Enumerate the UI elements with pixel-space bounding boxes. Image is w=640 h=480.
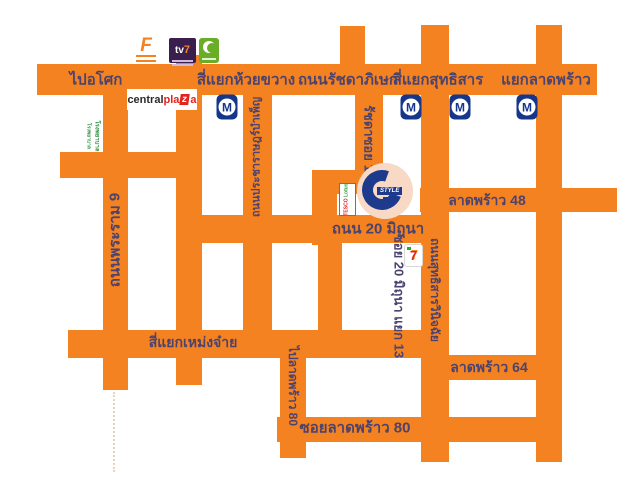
central-plaza-text: pla: [164, 94, 180, 106]
tv7-caption-line: [172, 60, 193, 62]
central-plaza-z-box: z: [180, 94, 191, 105]
tv7-logo: tv7: [169, 38, 196, 63]
green-leaf-logo: [199, 38, 219, 63]
f-channel-logo: F: [136, 36, 156, 62]
road-label-meng-jai: สี่แยกเหม่งจ๋าย: [149, 335, 238, 349]
hospital-text-line: โรงพยาบาล: [91, 120, 100, 151]
road-label-soi-lat-phrao-80: ซอยลาดพร้าว 80: [300, 421, 411, 436]
central-plaza-text: a: [190, 94, 196, 106]
road-segment-east: [536, 25, 562, 462]
leaf-icon-cut: [207, 43, 217, 53]
green-badge-caption-line: [202, 58, 216, 60]
road-label-sutthisan: สี่แยกสุทธิสาร: [393, 73, 484, 88]
central-plaza-logo: centralplaza: [127, 89, 197, 110]
c-style-label: STYLE: [377, 187, 402, 195]
c-style-destination-logo: STYLE: [357, 163, 413, 219]
seven-eleven-icon: 7: [404, 244, 423, 267]
mrt-station-icon: M: [517, 95, 538, 120]
road-label-pracharat-bamphen: ถนนประชาราษฎร์บำเพ็ญ: [252, 97, 263, 217]
road-dotted-continuation: [113, 392, 115, 472]
tesco-text: TESCO: [344, 198, 350, 215]
road-label-lat-phrao-48: ลาดพร้าว 48: [448, 193, 525, 207]
mrt-station-icon: M: [401, 95, 422, 120]
seven-eleven-green-stripe: [407, 247, 411, 250]
c-style-underline: [383, 197, 395, 199]
road-label-yaek-lat-phrao: แยกลาดพร้าว: [501, 73, 591, 88]
tesco-lotus-sign: TESCO Lotus: [339, 183, 356, 216]
f-logo-letter: F: [136, 36, 156, 57]
road-label-ratchadaphisek: ถนนรัชดาภิเษก: [298, 73, 398, 88]
mrt-station-icon: M: [450, 95, 471, 120]
lotus-text: Lotus: [344, 183, 350, 197]
mrt-ring: M: [219, 99, 236, 116]
road-label-sutthisan-winitchai: ถนนสุทธิสารวินิจฉัย: [429, 238, 441, 342]
mrt-m-label: M: [522, 101, 532, 113]
f-logo-caption-bar: [136, 60, 156, 62]
mrt-station-icon: M: [217, 95, 238, 120]
mrt-ring: M: [403, 99, 420, 116]
hospital-text-line: โรงพยาบาล: [84, 120, 92, 151]
road-label-rama9: ถนนพระราม 9: [108, 193, 123, 287]
mrt-ring: M: [519, 99, 536, 116]
tv7-caption-line: [172, 64, 193, 66]
road-label-huai-khwang: สี่แยกห้วยขวาง: [197, 73, 295, 88]
mrt-m-label: M: [455, 101, 465, 113]
seven-eleven-7: 7: [410, 249, 417, 262]
road-segment-soi-20-mithuna: [318, 243, 342, 337]
road-label-20-mithuna: ถนน 20 มิถุนา: [332, 222, 424, 237]
road-label-pai-asok: ไปอโศก: [70, 73, 123, 88]
road-segment-stub: [340, 26, 365, 68]
road-label-pai-lat-phrao-80: ไปลาดพร้าว 80: [287, 346, 299, 426]
hospital-logo: โรงพยาบาล โรงพยาบาล: [84, 120, 101, 151]
central-plaza-text: central: [127, 94, 163, 106]
road-label-lat-phrao-64: ลาดพร้าว 64: [450, 360, 527, 374]
mrt-ring: M: [452, 99, 469, 116]
bangkok-direction-map: ไปอโศก สี่แยกห้วยขวาง ถนนรัชดาภิเษก สี่แ…: [0, 0, 640, 480]
mrt-m-label: M: [406, 101, 416, 113]
tesco-lotus-text: TESCO Lotus: [345, 183, 350, 215]
mrt-m-label: M: [222, 101, 232, 113]
tv7-logo-tv: tv: [175, 45, 184, 56]
tv7-logo-seven: 7: [184, 44, 190, 56]
